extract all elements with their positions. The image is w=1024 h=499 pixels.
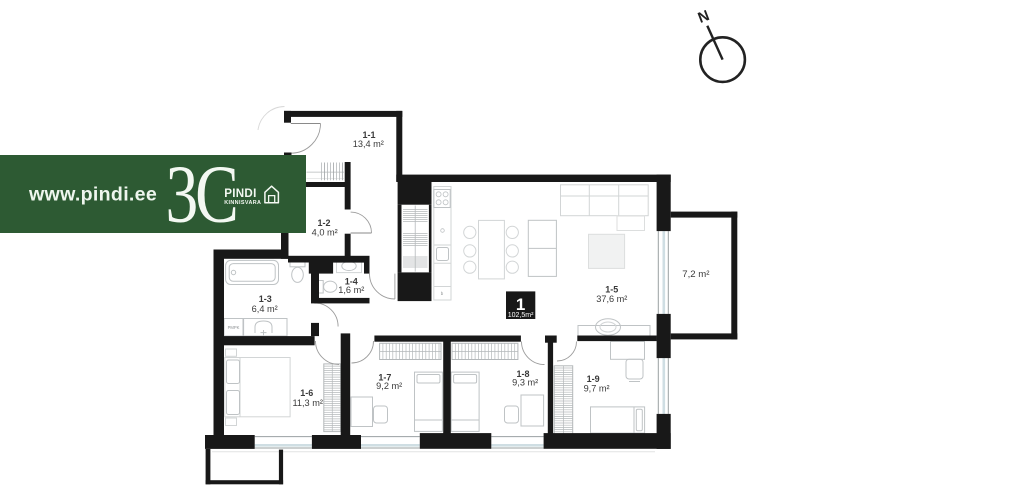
svg-text:www.pindi.ee: www.pindi.ee [28, 184, 157, 206]
svg-text:6,4 m²: 6,4 m² [252, 304, 278, 314]
svg-text:11,3 m²: 11,3 m² [292, 398, 322, 408]
svg-text:4,0 m²: 4,0 m² [312, 228, 338, 238]
svg-text:102,5m²: 102,5m² [508, 312, 534, 319]
svg-text:9,3 m²: 9,3 m² [512, 378, 538, 388]
svg-text:1-2: 1-2 [317, 218, 330, 228]
svg-text:PINDI: PINDI [224, 187, 256, 200]
svg-text:1-6: 1-6 [300, 388, 313, 398]
svg-text:1-5: 1-5 [605, 285, 618, 295]
svg-text:1,6 m²: 1,6 m² [338, 285, 364, 295]
svg-text:KINNISVARA: KINNISVARA [224, 200, 261, 206]
svg-text:PMPK: PMPK [228, 325, 240, 330]
svg-text:9,7 m²: 9,7 m² [584, 384, 610, 394]
svg-text:9,2 m²: 9,2 m² [376, 381, 402, 391]
svg-text:1-3: 1-3 [259, 294, 272, 304]
svg-text:7,2 m²: 7,2 m² [682, 269, 710, 280]
svg-text:37,6 m²: 37,6 m² [596, 294, 627, 304]
svg-text:13,4 m²: 13,4 m² [353, 139, 384, 149]
